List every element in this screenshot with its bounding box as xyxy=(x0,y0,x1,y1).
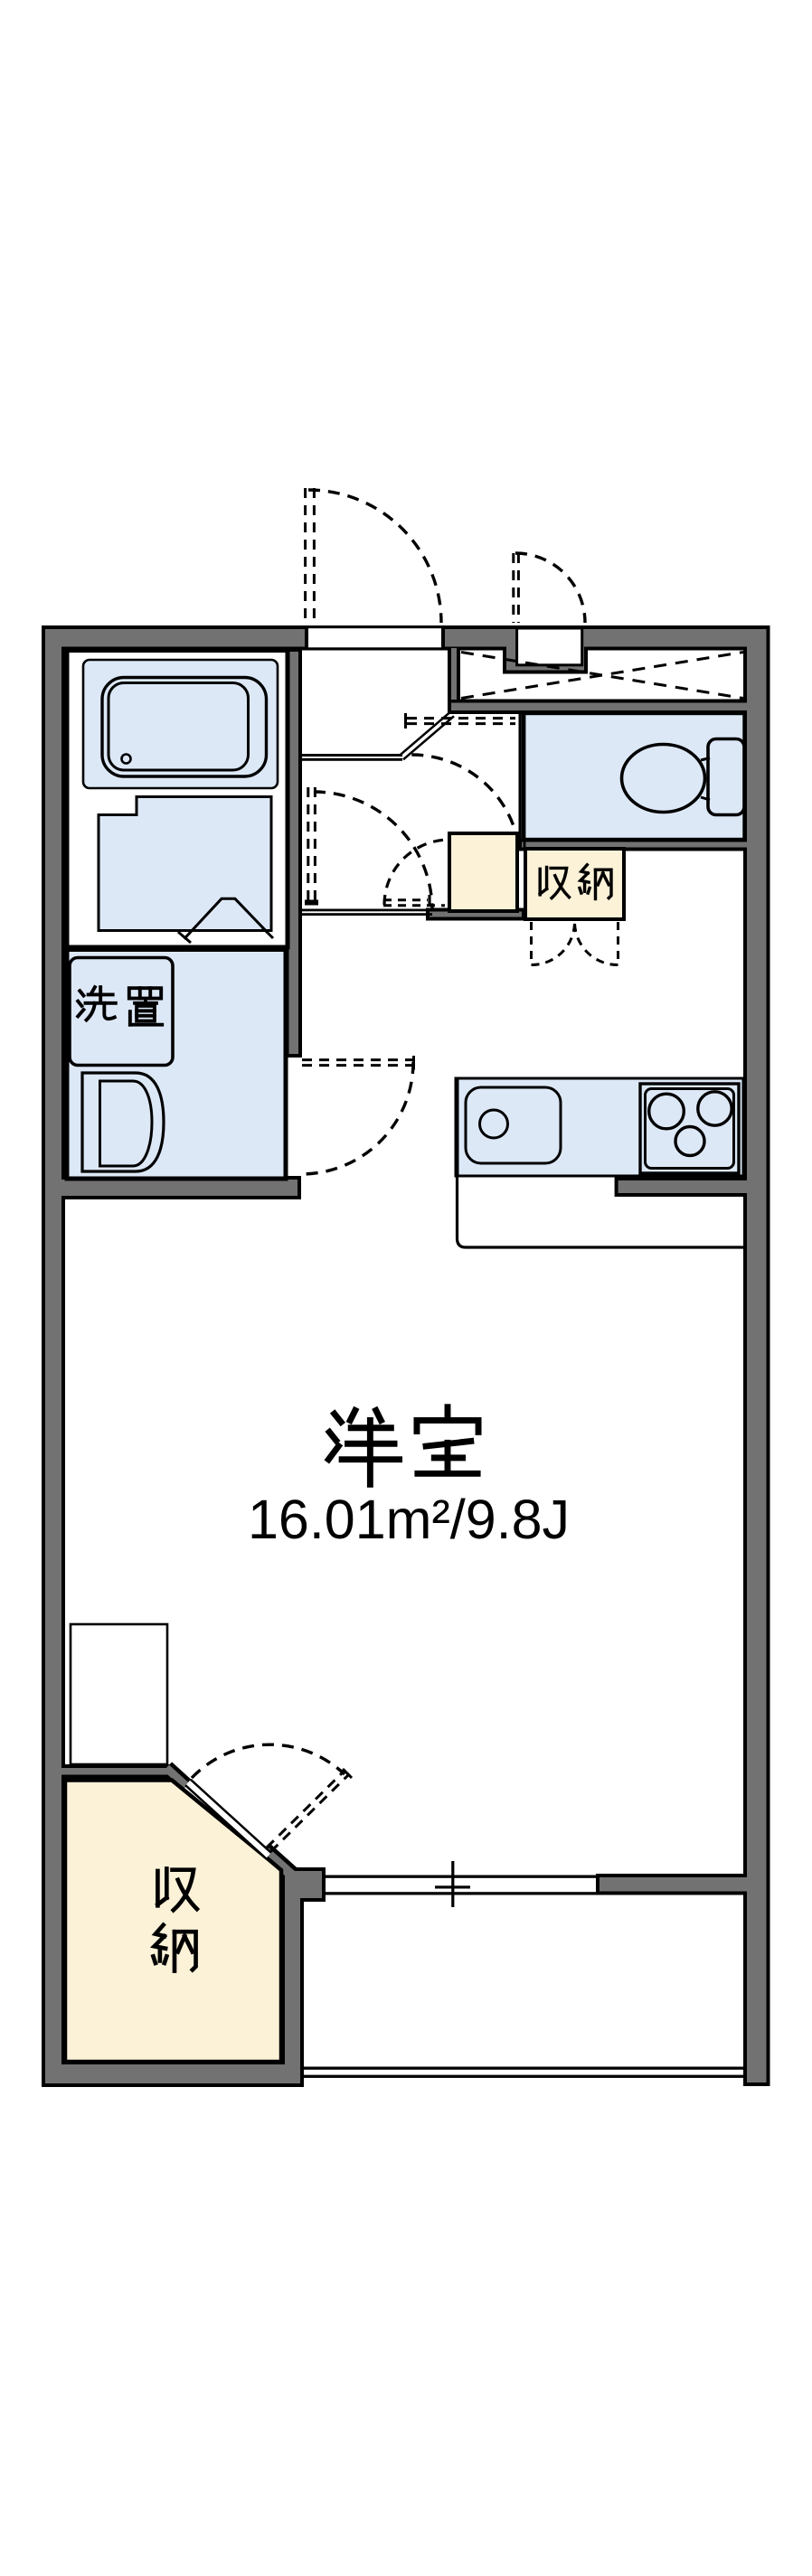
svg-text:16.01m²/9.8J: 16.01m²/9.8J xyxy=(248,1489,570,1550)
